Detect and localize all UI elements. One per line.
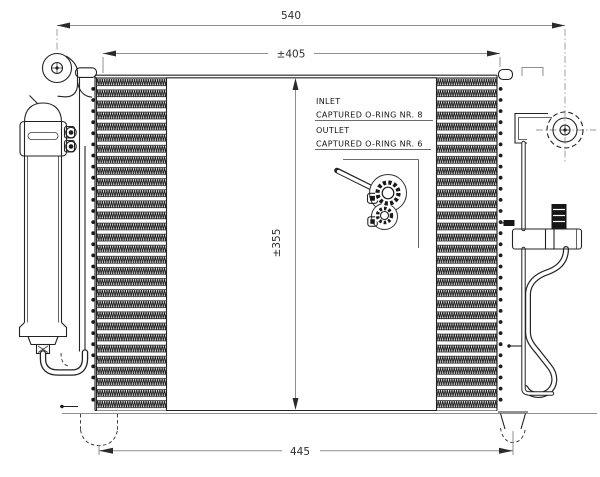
inlet-label: INLET bbox=[316, 97, 341, 106]
dimension-mount-spacing: 445 bbox=[99, 446, 513, 458]
dim-label-405: ±405 bbox=[277, 49, 306, 61]
inlet-tube-stub bbox=[76, 68, 97, 78]
dim-label-445: 445 bbox=[290, 446, 310, 458]
port-detail bbox=[337, 171, 407, 230]
label-sticker bbox=[552, 204, 567, 229]
inlet-note: CAPTURED O-RING NR. 8 bbox=[316, 111, 423, 120]
drier-base bbox=[20, 323, 67, 337]
condenser-technical-drawing: 540 ±405 ±355 bbox=[0, 0, 600, 477]
drawing-canvas: 540 ±405 ±355 bbox=[0, 0, 600, 477]
dimension-core-height: ±355 bbox=[271, 78, 299, 410]
fitting-block bbox=[513, 229, 582, 249]
top-right-mount bbox=[499, 70, 597, 149]
right-fin-column bbox=[437, 78, 498, 411]
drier-bracket-block bbox=[20, 122, 67, 157]
receiver-drier bbox=[20, 78, 86, 409]
dim-label-355: ±355 bbox=[271, 229, 283, 258]
top-left-mount bbox=[43, 54, 97, 98]
outlet-port bbox=[375, 206, 394, 225]
outlet-tube-stub bbox=[499, 70, 513, 80]
inlet-outlet-annotation: INLET CAPTURED O-RING NR. 8 OUTLET CAPTU… bbox=[315, 97, 433, 248]
outlet-note: CAPTURED O-RING NR. 6 bbox=[316, 140, 423, 149]
outlet-label: OUTLET bbox=[316, 126, 350, 135]
right-pipe-assembly bbox=[499, 143, 582, 395]
inlet-port bbox=[375, 180, 401, 206]
dimension-tube-width: ±405 bbox=[103, 49, 543, 77]
dim-label-540: 540 bbox=[281, 10, 301, 22]
drier-bracket-slot bbox=[28, 133, 58, 140]
left-fin-column bbox=[97, 78, 167, 411]
